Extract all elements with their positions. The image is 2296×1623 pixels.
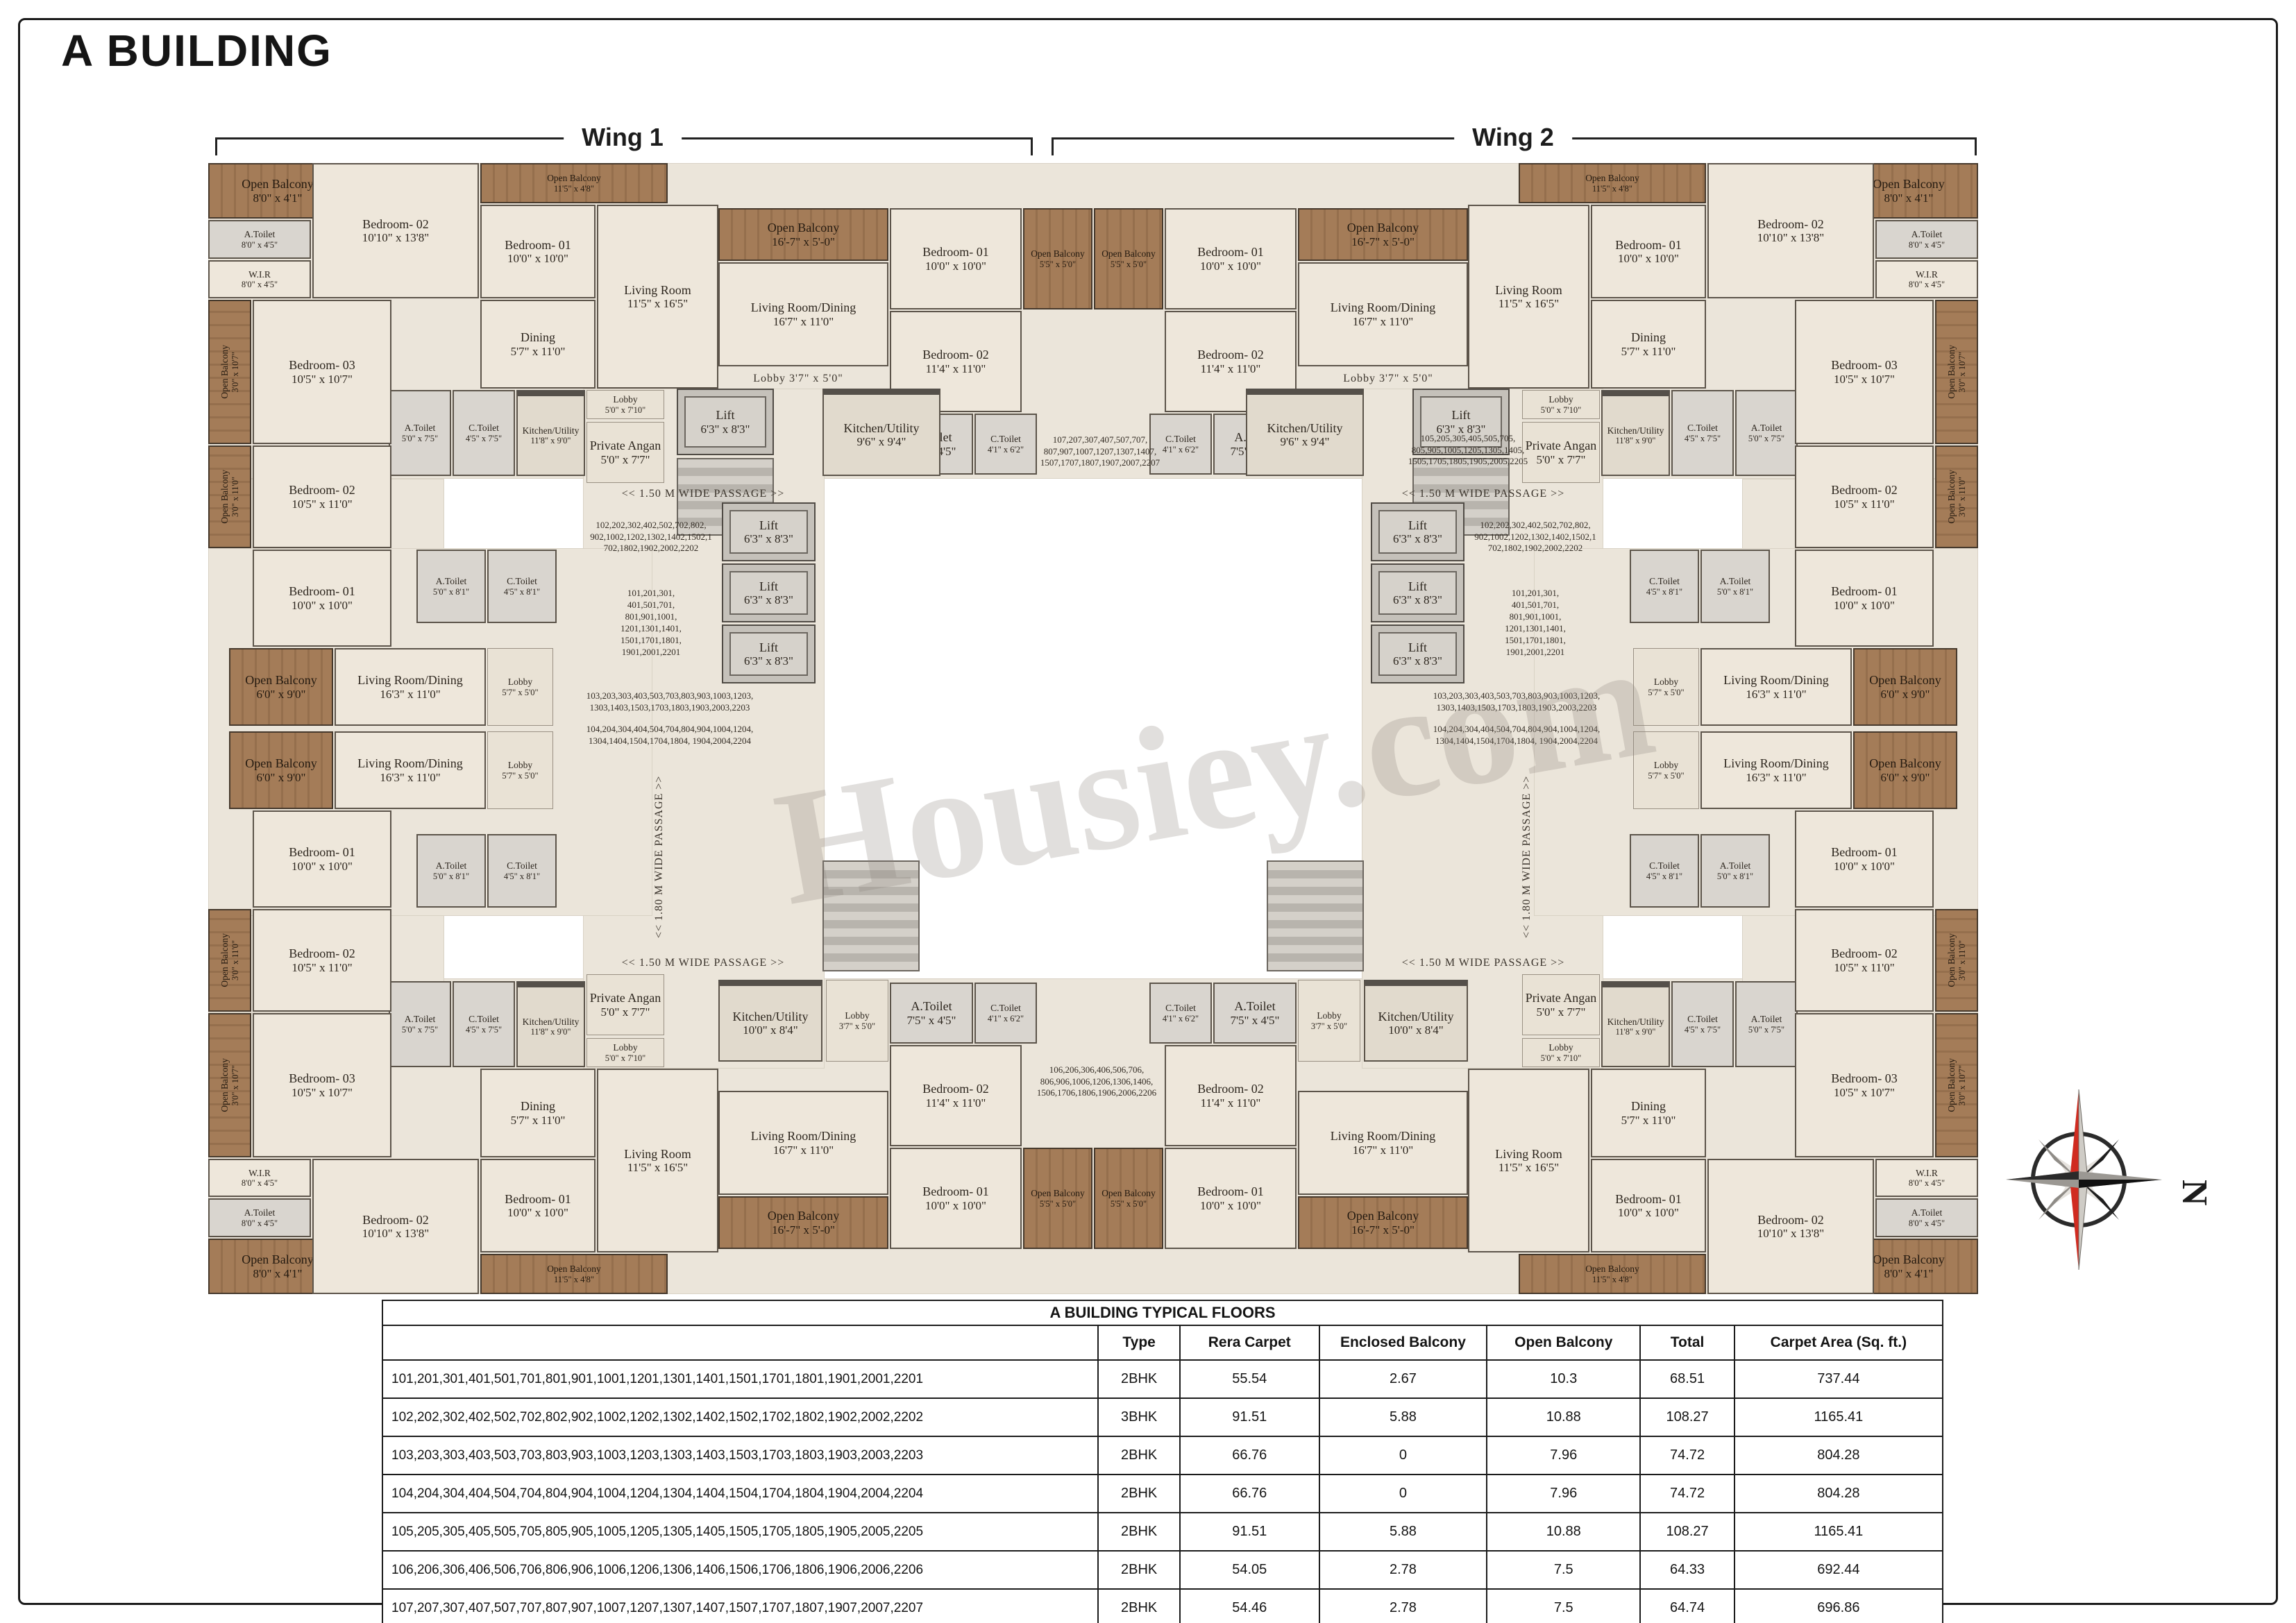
room-dimensions: 5'5" x 5'0": [1111, 1199, 1147, 1209]
room-dimensions: 5'0" x 8'1": [1717, 872, 1753, 881]
lobby: Lobby5'0" x 7'10": [586, 1038, 664, 1067]
toilet: A.Toilet8'0" x 4'5": [1875, 220, 1978, 259]
room-label: Open Balcony: [1585, 173, 1639, 183]
room-label: A.Toilet: [1911, 229, 1942, 239]
kitchen: Kitchen/Utility9'6" x 9'4": [822, 389, 940, 476]
room-label: C.Toilet: [1649, 860, 1680, 871]
room-label: Open Balcony: [1873, 1252, 1944, 1266]
room-dimensions: 5'7" x 11'0": [511, 1114, 566, 1127]
room-dimensions: 4'1" x 6'2": [988, 1014, 1024, 1023]
room: Living Room11'5" x 16'5": [1468, 1069, 1589, 1252]
room-dimensions: 8'0" x 4'1": [1884, 192, 1933, 205]
kitchen: Kitchen/Utility9'6" x 9'4": [1246, 389, 1364, 476]
kitchen: Kitchen/Utility11'8" x 9'0": [1601, 390, 1670, 476]
room-label: W.I.R: [248, 1168, 271, 1178]
room-dimensions: 6'3" x 8'3": [744, 654, 793, 668]
floor-plan-page: A BUILDING Wing 1 Wing 2 Open Balcony8'0…: [0, 0, 2296, 1623]
room-label: Open Balcony: [1869, 673, 1941, 687]
table-row: 104,204,304,404,504,704,804,904,1004,120…: [382, 1475, 1943, 1513]
room-label: Bedroom- 02: [1197, 348, 1263, 362]
lobby: Lobby5'7" x 5'0": [487, 648, 553, 726]
cell-total: 64.74: [1640, 1589, 1734, 1623]
room-dimensions: 8'0" x 4'5": [242, 1218, 278, 1228]
cell-open: 7.5: [1487, 1551, 1640, 1589]
room-label: Bedroom- 03: [289, 1071, 355, 1085]
room-label: Lift: [759, 518, 778, 532]
table-row: 105,205,305,405,505,705,805,905,1005,120…: [382, 1513, 1943, 1551]
room-label: Living Room/Dining: [751, 1129, 856, 1143]
cell-carpet: 1165.41: [1734, 1513, 1943, 1551]
cell-open: 7.96: [1487, 1436, 1640, 1475]
room-dimensions: 4'5" x 8'1": [1646, 587, 1682, 597]
room-label: Private Angan: [1526, 991, 1596, 1005]
cell-type: 2BHK: [1098, 1360, 1179, 1398]
room-dimensions: 10'5" x 10'7": [292, 1086, 353, 1099]
room-label: Open Balcony: [1347, 1209, 1419, 1223]
cell-units: 105,205,305,405,505,705,805,905,1005,120…: [382, 1513, 1098, 1551]
room: Living Room/Dining16'3" x 11'0": [1700, 648, 1852, 726]
toilet: C.Toilet4'1" x 6'2": [974, 414, 1037, 475]
open-balcony: Open Balcony5'5" x 5'0": [1023, 1148, 1092, 1249]
toilet: A.Toilet8'0" x 4'5": [208, 1198, 311, 1237]
room-label: Open Balcony: [242, 1252, 313, 1266]
room: Bedroom- 0110'0" x 10'0": [480, 1159, 596, 1252]
open-balcony: Open Balcony11'5" x 4'8": [480, 163, 668, 203]
room: Bedroom- 0110'0" x 10'0": [890, 208, 1022, 309]
room-label: C.Toilet: [1687, 1014, 1718, 1024]
toilet: A.Toilet7'5" x 4'5": [890, 983, 973, 1044]
room-label: Bedroom- 03: [1831, 1071, 1897, 1085]
room-dimensions: 16'7" x 11'0": [773, 315, 834, 328]
room-label: Bedroom- 02: [1197, 1082, 1263, 1096]
room-dimensions: 5'0" x 7'7": [1536, 1005, 1585, 1019]
room-dimensions: 16'7" x 11'0": [1353, 315, 1413, 328]
room-label: Living Room/Dining: [751, 300, 856, 314]
room-dimensions: 10'0" x 10'0": [925, 260, 986, 273]
open-balcony: Open Balcony11'5" x 4'8": [1519, 1254, 1706, 1294]
room-dimensions: 6'0" x 9'0": [256, 688, 305, 701]
room-dimensions: 11'5" x 16'5": [627, 1161, 688, 1174]
room-label: Living Room: [624, 1147, 691, 1161]
cell-rera: 66.76: [1180, 1436, 1319, 1475]
lobby: Lobby5'7" x 5'0": [1633, 731, 1699, 809]
room-label: Living Room/Dining: [1331, 300, 1436, 314]
room-dimensions: 10'5" x 11'0": [292, 961, 352, 974]
room-dimensions: 6'3" x 8'3": [1393, 593, 1442, 606]
unit-numbers: 103,203,303,403,503,703,803,903,1003,120…: [555, 687, 784, 717]
lobby: Lobby5'0" x 7'10": [1522, 390, 1600, 419]
room-dimensions: 5'0" x 8'1": [433, 587, 469, 597]
room-label: Bedroom- 01: [1615, 1192, 1681, 1206]
open-balcony: Open Balcony16'-7" x 5'-0": [1298, 208, 1468, 261]
room-label: Open Balcony: [219, 470, 230, 524]
room-label: C.Toilet: [469, 1014, 499, 1024]
lift: Lift6'3" x 8'3": [677, 389, 774, 455]
room-dimensions: 8'0" x 4'1": [253, 1267, 302, 1280]
room-label: Bedroom- 03: [1831, 358, 1897, 372]
room: Bedroom- 0210'5" x 11'0": [1795, 909, 1934, 1012]
open-balcony: Open Balcony3'0" x 10'7": [1935, 300, 1978, 444]
room-label: Living Room: [624, 283, 691, 297]
room-dimensions: 11'5" x 16'5": [1499, 297, 1559, 310]
room-label: Lobby: [508, 677, 532, 687]
open-balcony: Open Balcony3'0" x 11'0": [208, 445, 251, 548]
table-body: 101,201,301,401,501,701,801,901,1001,120…: [382, 1360, 1943, 1623]
room: Bedroom- 0110'0" x 10'0": [253, 810, 391, 908]
room-dimensions: 4'1" x 6'2": [988, 445, 1024, 454]
compass-horizontal-needle: [2006, 1171, 2162, 1188]
room-dimensions: 5'0" x 7'10": [1541, 1053, 1581, 1063]
room-label: A.Toilet: [436, 860, 466, 871]
cell-rera: 54.05: [1180, 1551, 1319, 1589]
room: Bedroom- 0310'5" x 10'7": [1795, 1013, 1934, 1157]
room: Living Room/Dining16'7" x 11'0": [1298, 262, 1468, 366]
room: Bedroom- 0310'5" x 10'7": [1795, 300, 1934, 444]
toilet: A.Toilet8'0" x 4'5": [208, 220, 311, 259]
room-dimensions: 16'-7" x 5'-0": [772, 1223, 835, 1237]
table-row: 101,201,301,401,501,701,801,901,1001,120…: [382, 1360, 1943, 1398]
room-dimensions: 10'0" x 10'0": [1618, 1206, 1679, 1219]
cell-enclosed: 2.78: [1319, 1589, 1487, 1623]
room-label: Bedroom- 01: [289, 845, 355, 859]
room-label: Open Balcony: [547, 173, 601, 183]
room: Bedroom- 0210'10" x 13'8": [1707, 163, 1874, 298]
room-dimensions: 11'5" x 4'8": [1592, 184, 1632, 194]
cell-units: 103,203,303,403,503,703,803,903,1003,120…: [382, 1436, 1098, 1475]
room-dimensions: 6'3" x 8'3": [744, 532, 793, 545]
room-label: Bedroom- 01: [1831, 584, 1897, 598]
room-dimensions: 11'5" x 4'8": [554, 1275, 594, 1284]
room-dimensions: 5'0" x 7'10": [605, 405, 645, 415]
room-label: Open Balcony: [1585, 1264, 1639, 1274]
room-dimensions: 11'5" x 16'5": [1499, 1161, 1559, 1174]
room-label: Bedroom- 02: [1757, 1213, 1823, 1227]
cell-enclosed: 0: [1319, 1475, 1487, 1513]
table-row: 106,206,306,406,506,706,806,906,1006,120…: [382, 1551, 1943, 1589]
room-dimensions: 8'0" x 4'5": [1909, 1178, 1945, 1188]
passage-label: << 1.80 M WIDE PASSAGE >>: [1517, 749, 1537, 965]
room-dimensions: 10'0" x 10'0": [1834, 599, 1895, 612]
room: Bedroom- 0110'0" x 10'0": [253, 550, 391, 647]
room-label: Lobby: [1317, 1010, 1341, 1021]
cell-type: 3BHK: [1098, 1398, 1179, 1436]
room-dimensions: 10'0" x 8'4": [743, 1023, 798, 1037]
room-dimensions: 11'5" x 4'8": [1592, 1275, 1632, 1284]
room-dimensions: 5'0" x 7'7": [600, 1005, 650, 1019]
toilet: A.Toilet5'0" x 7'5": [389, 390, 451, 476]
room-dimensions: 16'3" x 11'0": [1746, 771, 1806, 784]
room: Living Room/Dining16'3" x 11'0": [1700, 731, 1852, 809]
room-dimensions: 11'8" x 9'0": [531, 1027, 571, 1037]
room-label: Open Balcony: [245, 756, 316, 770]
open-balcony: Open Balcony16'-7" x 5'-0": [718, 208, 888, 261]
room-label: Living Room/Dining: [1723, 673, 1829, 687]
room-dimensions: 3'0" x 11'0": [230, 940, 240, 980]
room-dimensions: 3'0" x 10'7": [1957, 352, 1967, 392]
column-header: Type: [1098, 1325, 1179, 1360]
lobby: Private Angan5'0" x 7'7": [586, 974, 664, 1035]
room-label: A.Toilet: [1234, 999, 1275, 1013]
room-dimensions: 10'0" x 10'0": [1200, 260, 1261, 273]
room-dimensions: 6'0" x 9'0": [1880, 771, 1930, 784]
room-label: Dining: [1631, 1099, 1666, 1113]
room-label: Open Balcony: [219, 1058, 230, 1112]
room-label: Kitchen/Utility: [523, 1017, 580, 1027]
toilet: C.Toilet4'5" x 8'1": [1630, 550, 1699, 623]
toilet: C.Toilet4'1" x 6'2": [1149, 983, 1212, 1044]
room: Dining5'7" x 11'0": [1591, 1069, 1706, 1157]
lobby: Lobby5'0" x 7'10": [1522, 1038, 1600, 1067]
room: Living Room/Dining16'7" x 11'0": [718, 1091, 888, 1195]
room-dimensions: 5'0" x 7'5": [1748, 1025, 1784, 1035]
open-balcony: Open Balcony3'0" x 10'7": [208, 1013, 251, 1157]
open-balcony: Open Balcony3'0" x 10'7": [208, 300, 251, 444]
lobby: Lobby5'7" x 5'0": [1633, 648, 1699, 726]
room-label: Lobby: [1654, 677, 1678, 687]
open-balcony: Open Balcony5'5" x 5'0": [1094, 208, 1163, 309]
room-label: Lift: [716, 408, 735, 422]
room-dimensions: 10'5" x 11'0": [1834, 498, 1894, 511]
room-label: Bedroom- 01: [1197, 245, 1263, 259]
room: Bedroom- 0110'0" x 10'0": [890, 1148, 1022, 1249]
cell-carpet: 737.44: [1734, 1360, 1943, 1398]
room-label: Living Room: [1495, 283, 1562, 297]
room-label: Lift: [1408, 579, 1427, 593]
room-label: Private Angan: [590, 991, 661, 1005]
column-header: Open Balcony: [1487, 1325, 1640, 1360]
room-label: Lobby: [1548, 394, 1573, 405]
room-dimensions: 5'0" x 7'5": [402, 1025, 438, 1035]
room: Bedroom- 0211'4" x 11'0": [1165, 1045, 1297, 1146]
room-dimensions: 16'-7" x 5'-0": [1351, 235, 1415, 248]
unit-numbers: 101,201,301, 401,501,701, 801,901,1001, …: [589, 572, 714, 674]
room-dimensions: 11'4" x 11'0": [926, 362, 986, 375]
room-label: Kitchen/Utility: [1378, 1010, 1454, 1023]
room-label: Open Balcony: [1946, 470, 1957, 524]
room: Bedroom- 0110'0" x 10'0": [1795, 550, 1934, 647]
room-dimensions: 16'3" x 11'0": [380, 771, 440, 784]
room-dimensions: 10'10" x 13'8": [1757, 231, 1825, 244]
room-dimensions: 3'7" x 5'0": [1311, 1021, 1347, 1031]
room: W.I.R8'0" x 4'5": [1875, 260, 1978, 298]
open-balcony: Open Balcony3'0" x 11'0": [1935, 909, 1978, 1012]
room-label: Lift: [759, 579, 778, 593]
lobby: Lobby5'7" x 5'0": [487, 731, 553, 809]
column-header: [382, 1325, 1098, 1360]
room-dimensions: 3'0" x 11'0": [1957, 477, 1967, 517]
room-label: C.Toilet: [507, 860, 537, 871]
cell-type: 2BHK: [1098, 1475, 1179, 1513]
room-label: A.Toilet: [405, 1014, 435, 1024]
room-dimensions: 4'5" x 7'5": [1685, 434, 1721, 443]
room-dimensions: 5'0" x 8'1": [433, 872, 469, 881]
table-title: A BUILDING TYPICAL FLOORS: [382, 1300, 1943, 1325]
unit-numbers: 107,207,307,407,507,707, 807,907,1007,12…: [1038, 425, 1163, 479]
room: Bedroom- 0210'10" x 13'8": [1707, 1159, 1874, 1294]
room-label: A.Toilet: [1720, 860, 1750, 871]
toilet: A.Toilet8'0" x 4'5": [1875, 1198, 1978, 1237]
kitchen: Kitchen/Utility10'0" x 8'4": [718, 980, 822, 1062]
room-dimensions: 3'0" x 11'0": [1957, 940, 1967, 980]
room-dimensions: 8'0" x 4'5": [1909, 1218, 1945, 1228]
cell-carpet: 692.44: [1734, 1551, 1943, 1589]
room-dimensions: 10'10" x 13'8": [362, 1227, 430, 1240]
lobby: Lobby5'0" x 7'10": [586, 390, 664, 419]
room-dimensions: 5'0" x 7'10": [605, 1053, 645, 1063]
cell-rera: 55.54: [1180, 1360, 1319, 1398]
room-label: Bedroom- 01: [1831, 845, 1897, 859]
room-dimensions: 4'1" x 6'2": [1163, 445, 1199, 454]
room: Bedroom- 0110'0" x 10'0": [1591, 1159, 1706, 1252]
open-balcony: Open Balcony6'0" x 9'0": [229, 648, 333, 726]
room-label: Lobby: [845, 1010, 869, 1021]
room-dimensions: 4'5" x 7'5": [466, 434, 502, 443]
open-balcony: Open Balcony11'5" x 4'8": [480, 1254, 668, 1294]
room-dimensions: 10'0" x 10'0": [292, 599, 353, 612]
unit-numbers: 101,201,301, 401,501,701, 801,901,1001, …: [1473, 572, 1598, 674]
room-label: Private Angan: [590, 439, 661, 452]
room-dimensions: 6'3" x 8'3": [744, 593, 793, 606]
room-dimensions: 16'-7" x 5'-0": [1351, 1223, 1415, 1237]
cell-open: 10.88: [1487, 1513, 1640, 1551]
room-dimensions: 10'0" x 10'0": [1834, 860, 1895, 873]
room-label: Lobby: [1548, 1042, 1573, 1053]
room-dimensions: 5'0" x 7'10": [1541, 405, 1581, 415]
room-dimensions: 5'0" x 7'5": [402, 434, 438, 443]
cell-carpet: 696.86: [1734, 1589, 1943, 1623]
room-dimensions: 10'0" x 8'4": [1388, 1023, 1444, 1037]
column-header: Rera Carpet: [1180, 1325, 1319, 1360]
room-label: Kitchen/Utility: [733, 1010, 809, 1023]
room-dimensions: 6'0" x 9'0": [256, 771, 305, 784]
room-dimensions: 5'7" x 5'0": [502, 771, 538, 781]
room: Living Room11'5" x 16'5": [1468, 205, 1589, 389]
room-dimensions: 11'8" x 9'0": [1616, 436, 1656, 445]
column-header: Enclosed Balcony: [1319, 1325, 1487, 1360]
room-dimensions: 3'7" x 5'0": [839, 1021, 875, 1031]
room: Bedroom- 0310'5" x 10'7": [253, 1013, 391, 1157]
room-dimensions: 6'3" x 8'3": [1393, 654, 1442, 668]
room-label: Open Balcony: [1031, 248, 1085, 259]
room-dimensions: 8'0" x 4'1": [253, 192, 302, 205]
room-dimensions: 11'4" x 11'0": [926, 1096, 986, 1110]
room-dimensions: 8'0" x 4'1": [1884, 1267, 1933, 1280]
room-label: Dining: [521, 330, 555, 344]
cell-open: 10.88: [1487, 1398, 1640, 1436]
toilet: A.Toilet5'0" x 8'1": [416, 834, 486, 908]
room: Bedroom- 0110'0" x 10'0": [1165, 1148, 1297, 1249]
room-label: Open Balcony: [768, 1209, 839, 1223]
cell-enclosed: 0: [1319, 1436, 1487, 1475]
room-label: Bedroom- 01: [922, 1184, 988, 1198]
room-label: Kitchen/Utility: [1607, 425, 1664, 436]
unit-numbers: 103,203,303,403,503,703,803,903,1003,120…: [1402, 687, 1631, 717]
room-label: Open Balcony: [768, 221, 839, 235]
room-label: Bedroom- 02: [289, 946, 355, 960]
unit-numbers: 102,202,302,402,502,702,802, 902,1002,12…: [1473, 505, 1598, 569]
room-label: Open Balcony: [1946, 1058, 1957, 1112]
cell-enclosed: 2.78: [1319, 1551, 1487, 1589]
room-dimensions: 16'-7" x 5'-0": [772, 235, 835, 248]
lift: Lift6'3" x 8'3": [1371, 624, 1464, 683]
room-dimensions: 16'3" x 11'0": [380, 688, 440, 701]
open-balcony: Open Balcony16'-7" x 5'-0": [1298, 1196, 1468, 1249]
room: Bedroom- 0210'5" x 11'0": [253, 909, 391, 1012]
cell-total: 64.33: [1640, 1551, 1734, 1589]
room-label: Kitchen/Utility: [844, 421, 920, 435]
open-balcony: Open Balcony6'0" x 9'0": [1853, 731, 1957, 809]
toilet: A.Toilet7'5" x 4'5": [1213, 983, 1297, 1044]
room: Bedroom- 0310'5" x 10'7": [253, 300, 391, 444]
room-label: Open Balcony: [242, 177, 313, 191]
cell-total: 108.27: [1640, 1398, 1734, 1436]
room-label: Bedroom- 01: [1197, 1184, 1263, 1198]
room-dimensions: 10'5" x 10'7": [1834, 373, 1895, 386]
cell-open: 7.5: [1487, 1589, 1640, 1623]
room-dimensions: 4'5" x 8'1": [1646, 872, 1682, 881]
room-label: Kitchen/Utility: [1607, 1017, 1664, 1027]
lobby: Private Angan5'0" x 7'7": [1522, 422, 1600, 483]
room-dimensions: 10'0" x 10'0": [1200, 1199, 1261, 1212]
open-balcony: Open Balcony16'-7" x 5'-0": [718, 1196, 888, 1249]
lobby-label: Lobby 3'7" x 5'0": [757, 371, 840, 387]
room-dimensions: 5'7" x 11'0": [1621, 345, 1676, 358]
room-label: C.Toilet: [1165, 434, 1196, 444]
room-label: A.Toilet: [436, 576, 466, 586]
passage-label: << 1.50 M WIDE PASSAGE >>: [1362, 486, 1605, 502]
room-label: Living Room/Dining: [1723, 756, 1829, 770]
cell-type: 2BHK: [1098, 1513, 1179, 1551]
room-label: Kitchen/Utility: [1267, 421, 1343, 435]
room-label: Bedroom- 01: [1615, 238, 1681, 252]
passage-label: << 1.50 M WIDE PASSAGE >>: [582, 486, 825, 502]
room: Bedroom- 0110'0" x 10'0": [1795, 810, 1934, 908]
open-balcony: Open Balcony5'5" x 5'0": [1023, 208, 1092, 309]
wing1-label: Wing 1: [564, 123, 682, 152]
room: Bedroom- 0211'4" x 11'0": [890, 1045, 1022, 1146]
room-label: A.Toilet: [1751, 423, 1782, 433]
room-label: Open Balcony: [1101, 1188, 1156, 1198]
room: Living Room11'5" x 16'5": [597, 1069, 718, 1252]
room-dimensions: 5'7" x 5'0": [1648, 688, 1684, 697]
room-dimensions: 16'7" x 11'0": [773, 1144, 834, 1157]
room-label: Open Balcony: [245, 673, 316, 687]
room-label: C.Toilet: [1649, 576, 1680, 586]
cell-carpet: 804.28: [1734, 1475, 1943, 1513]
room-label: Bedroom- 03: [289, 358, 355, 372]
room-label: Private Angan: [1526, 439, 1596, 452]
room-label: Lobby: [613, 1042, 637, 1053]
passage-label: << 1.50 M WIDE PASSAGE >>: [1362, 955, 1605, 971]
room-dimensions: 5'5" x 5'0": [1040, 1199, 1076, 1209]
room-dimensions: 10'5" x 10'7": [1834, 1086, 1895, 1099]
lobby-label: Lobby 3'7" x 5'0": [1347, 371, 1430, 387]
room-label: A.Toilet: [1911, 1207, 1942, 1218]
room-dimensions: 10'0" x 10'0": [925, 1199, 986, 1212]
room-dimensions: 4'5" x 7'5": [466, 1025, 502, 1035]
cell-total: 74.72: [1640, 1475, 1734, 1513]
lobby: Private Angan5'0" x 7'7": [586, 422, 664, 483]
toilet: C.Toilet4'5" x 8'1": [487, 834, 557, 908]
cell-rera: 66.76: [1180, 1475, 1319, 1513]
room-dimensions: 10'0" x 10'0": [507, 1206, 568, 1219]
room-dimensions: 10'5" x 11'0": [292, 498, 352, 511]
room-dimensions: 6'0" x 9'0": [1880, 688, 1930, 701]
room-label: Living Room: [1495, 1147, 1562, 1161]
room-label: A.Toilet: [911, 999, 952, 1013]
room: Bedroom- 0210'5" x 11'0": [1795, 445, 1934, 548]
room-label: Bedroom- 02: [922, 348, 988, 362]
